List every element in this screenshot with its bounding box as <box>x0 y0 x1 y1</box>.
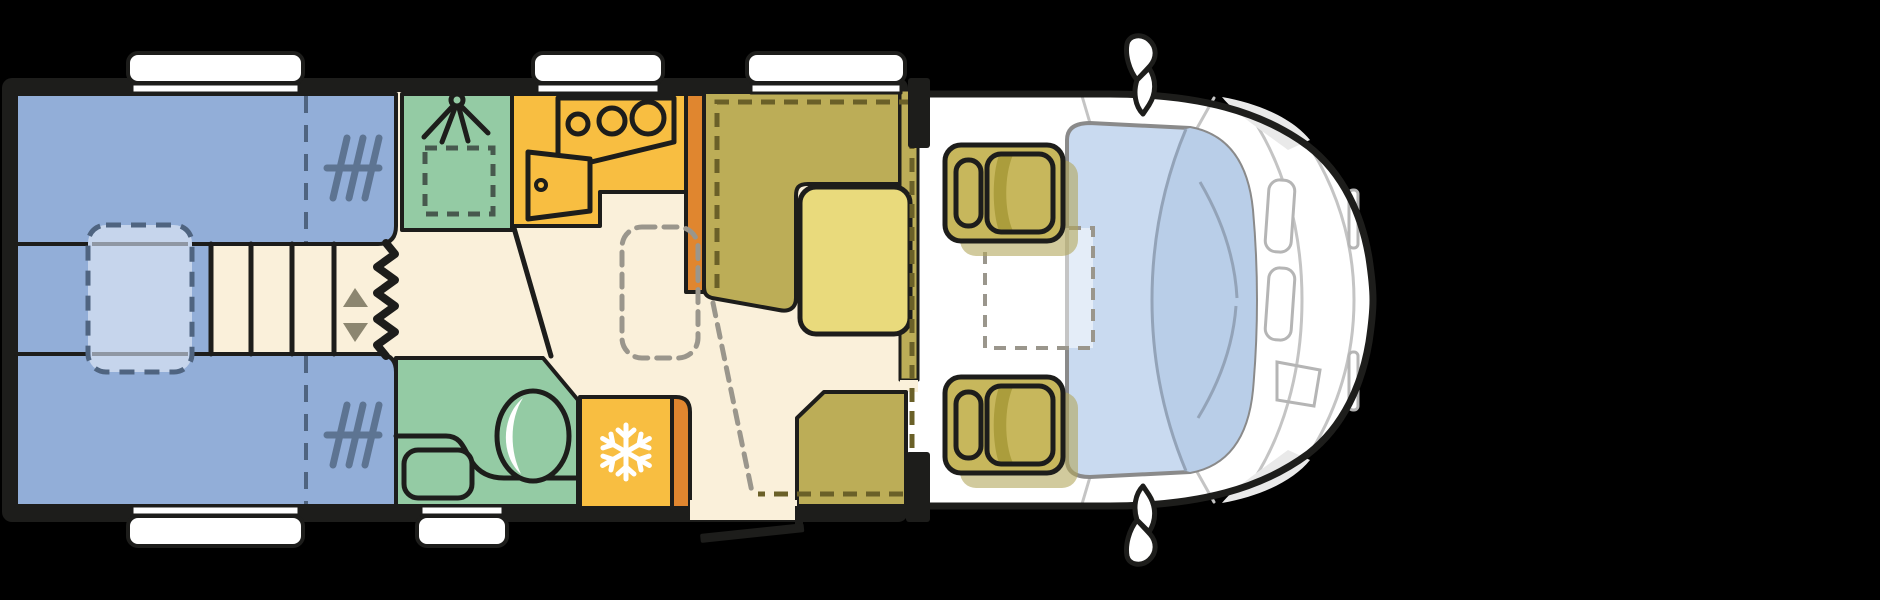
floorplan-canvas <box>0 0 1880 600</box>
tall-cabinet <box>686 94 704 292</box>
entry-door-hinge <box>795 506 803 526</box>
washroom <box>396 358 578 506</box>
dinette-table <box>800 187 910 334</box>
shower-room <box>402 94 512 230</box>
habitation-section <box>2 53 930 546</box>
window-dinette-top <box>747 53 905 93</box>
headlight-lower <box>1265 267 1296 341</box>
wall-stub-top <box>908 78 930 148</box>
washroom-sink-icon <box>404 450 472 498</box>
motorhome-floorplan <box>0 0 1880 600</box>
headlight-upper <box>1265 179 1296 253</box>
bed-insert-panel <box>88 225 192 372</box>
fridge-block <box>580 397 690 508</box>
window-kitchen-top <box>533 53 663 93</box>
entry-door-opening <box>690 500 797 520</box>
wall-stub-bottom <box>906 452 930 522</box>
cab-seat-passenger <box>945 377 1078 488</box>
window-rear-bed-top <box>128 53 303 93</box>
dinette-bench-front <box>797 392 906 506</box>
cab-seat-driver <box>945 145 1078 256</box>
window-rear-bed-bottom <box>128 506 303 546</box>
window-washroom-bottom <box>417 506 507 546</box>
